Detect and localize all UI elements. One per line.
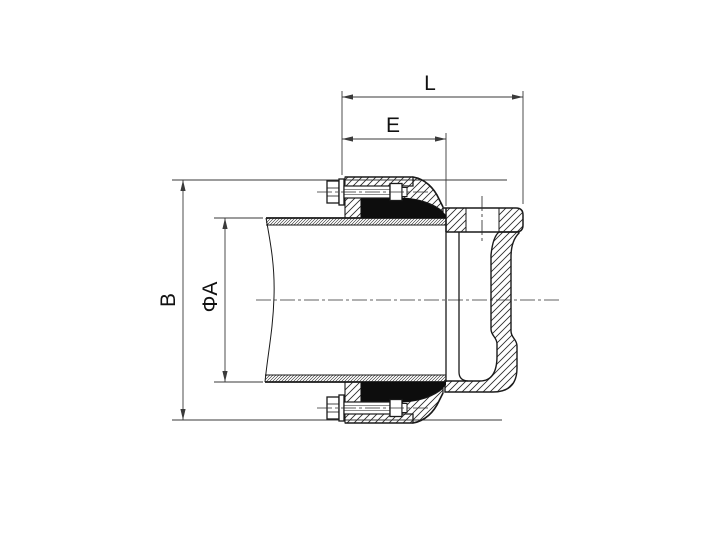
cap-internal-seat bbox=[459, 232, 468, 381]
dim-label-phiA: ΦA bbox=[199, 282, 222, 313]
dim-label-E: E bbox=[386, 114, 400, 137]
engineering-drawing-canvas: L E B ΦA bbox=[0, 0, 720, 540]
dim-label-L: L bbox=[424, 72, 436, 95]
arrowhead bbox=[222, 371, 227, 382]
arrowhead bbox=[180, 409, 185, 420]
arrowhead bbox=[180, 180, 185, 191]
arrowhead bbox=[222, 218, 227, 229]
arrowhead bbox=[342, 136, 353, 141]
arrowhead bbox=[342, 94, 353, 99]
arrowhead bbox=[435, 136, 446, 141]
dimension-phiA: ΦA bbox=[199, 218, 263, 382]
cap-body-section bbox=[445, 232, 519, 392]
arrowhead bbox=[512, 94, 523, 99]
drawing-page: L E B ΦA bbox=[0, 0, 720, 540]
dim-label-B: B bbox=[157, 293, 180, 307]
